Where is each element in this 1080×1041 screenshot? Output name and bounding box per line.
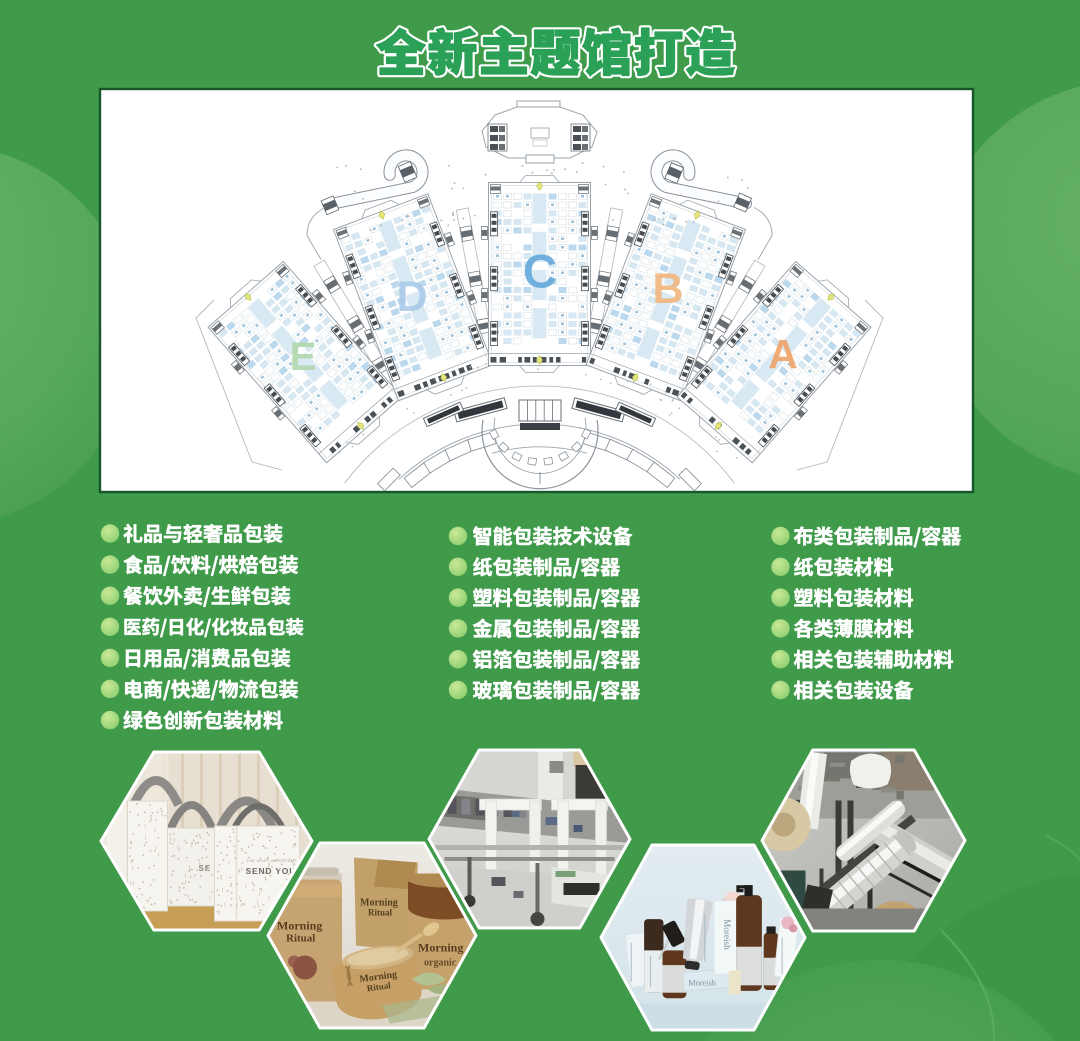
svg-text:C: C (523, 245, 557, 298)
svg-text:Morning: Morning (277, 919, 322, 933)
svg-text:E: E (290, 335, 317, 379)
svg-text:organic: organic (424, 958, 457, 969)
svg-text:D: D (396, 273, 427, 321)
svg-text:Morning: Morning (418, 941, 463, 955)
svg-text:SE: SE (199, 864, 212, 873)
svg-text:Ritual: Ritual (368, 908, 393, 918)
svg-text:A: A (768, 331, 798, 377)
svg-text:Moreish: Moreish (688, 978, 716, 987)
svg-text:Ritual: Ritual (286, 933, 315, 945)
svg-text:Moreish: Moreish (722, 919, 732, 950)
svg-text:B: B (652, 265, 683, 313)
